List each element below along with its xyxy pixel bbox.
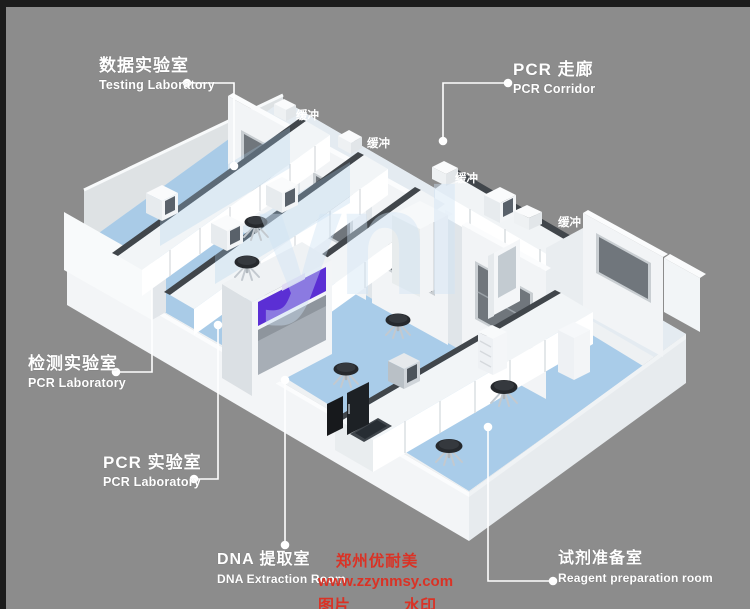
storage-column	[558, 322, 590, 380]
image-border-top	[0, 0, 750, 7]
buffer-gap-wall-3	[448, 219, 462, 351]
lab-rendering: 缓冲 缓冲 缓冲 缓冲 ynl 数据实验室 Testing Laboratory…	[0, 0, 750, 609]
lab-scene-svg: 缓冲 缓冲 缓冲 缓冲	[0, 0, 750, 609]
buffer-tag-3: 缓冲	[455, 171, 478, 185]
image-border-left	[0, 0, 6, 609]
tall-fridge	[392, 201, 448, 297]
buffer-tag-1: 缓冲	[296, 108, 319, 122]
buffer-tag-2: 缓冲	[367, 136, 390, 150]
buffer-tag-4: 缓冲	[558, 215, 581, 229]
drawer-unit	[478, 325, 507, 375]
